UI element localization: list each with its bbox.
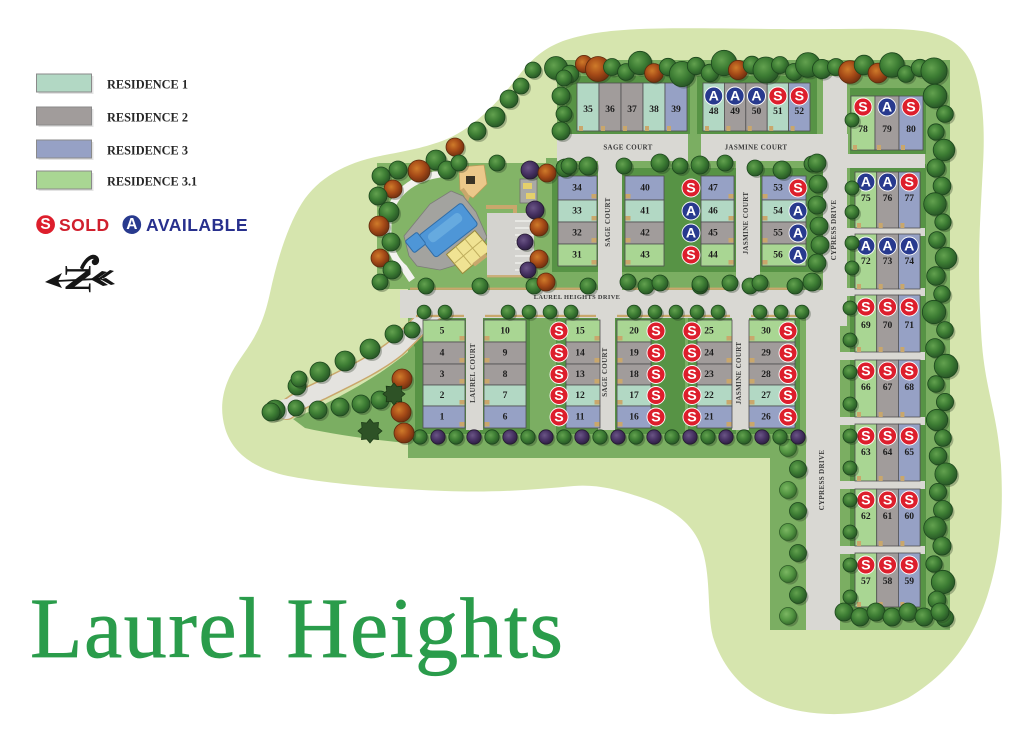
svg-text:65: 65	[904, 447, 914, 458]
svg-text:S: S	[883, 428, 892, 444]
svg-text:66: 66	[861, 382, 871, 393]
svg-text:A: A	[686, 225, 696, 241]
svg-text:73: 73	[883, 256, 893, 267]
svg-text:S: S	[686, 247, 695, 263]
svg-text:S: S	[861, 299, 870, 315]
svg-text:50: 50	[752, 106, 762, 117]
svg-text:59: 59	[904, 576, 914, 587]
svg-text:43: 43	[640, 250, 650, 261]
svg-text:39: 39	[671, 104, 681, 115]
svg-text:A: A	[730, 88, 740, 104]
svg-text:A: A	[861, 174, 871, 190]
svg-text:16: 16	[629, 412, 639, 423]
svg-text:31: 31	[572, 250, 582, 261]
svg-text:68: 68	[904, 382, 914, 393]
svg-text:79: 79	[882, 124, 892, 135]
svg-text:S: S	[883, 363, 892, 379]
svg-text:3: 3	[440, 369, 445, 380]
svg-text:S: S	[858, 99, 867, 115]
svg-text:25: 25	[704, 326, 714, 337]
svg-text:JASMINE COURT: JASMINE COURT	[742, 192, 750, 255]
svg-text:S: S	[883, 492, 892, 508]
svg-text:S: S	[783, 345, 792, 361]
svg-text:9: 9	[503, 348, 508, 359]
svg-text:S: S	[687, 367, 696, 383]
svg-text:A: A	[882, 238, 892, 254]
svg-text:RESIDENCE 2: RESIDENCE 2	[107, 111, 188, 125]
svg-text:S: S	[651, 323, 660, 339]
svg-text:34: 34	[572, 183, 582, 194]
svg-text:71: 71	[904, 320, 914, 331]
svg-text:62: 62	[861, 511, 871, 522]
svg-text:63: 63	[861, 447, 871, 458]
svg-text:S: S	[687, 345, 696, 361]
svg-text:SAGE COURT: SAGE COURT	[603, 144, 652, 152]
svg-text:49: 49	[730, 106, 740, 117]
svg-text:11: 11	[575, 412, 584, 423]
svg-text:S: S	[651, 409, 660, 425]
svg-text:32: 32	[572, 228, 582, 239]
svg-text:24: 24	[704, 348, 714, 359]
svg-text:5: 5	[440, 326, 445, 337]
svg-text:75: 75	[861, 193, 871, 204]
svg-text:48: 48	[709, 106, 719, 117]
svg-text:S: S	[554, 367, 563, 383]
svg-text:14: 14	[575, 348, 585, 359]
svg-text:A: A	[126, 216, 137, 233]
svg-text:LAUREL COURT: LAUREL COURT	[469, 343, 477, 403]
svg-text:60: 60	[904, 511, 914, 522]
svg-text:40: 40	[640, 183, 650, 194]
svg-text:20: 20	[629, 326, 639, 337]
svg-text:S: S	[883, 557, 892, 573]
svg-text:S: S	[687, 409, 696, 425]
svg-text:33: 33	[572, 206, 582, 217]
svg-text:S: S	[651, 367, 660, 383]
svg-text:52: 52	[795, 106, 805, 117]
svg-text:70: 70	[883, 320, 893, 331]
svg-text:64: 64	[883, 447, 893, 458]
svg-text:17: 17	[629, 390, 639, 401]
svg-text:27: 27	[761, 390, 771, 401]
svg-text:AVAILABLE: AVAILABLE	[146, 215, 248, 235]
svg-text:S: S	[905, 299, 914, 315]
svg-text:S: S	[883, 299, 892, 315]
svg-text:S: S	[905, 428, 914, 444]
svg-text:58: 58	[883, 576, 893, 587]
svg-text:RESIDENCE 3.1: RESIDENCE 3.1	[107, 175, 197, 189]
svg-text:S: S	[554, 323, 563, 339]
svg-text:S: S	[793, 180, 802, 196]
svg-text:80: 80	[906, 124, 916, 135]
svg-text:10: 10	[500, 326, 510, 337]
svg-text:S: S	[861, 492, 870, 508]
svg-text:A: A	[793, 203, 803, 219]
svg-text:1: 1	[440, 412, 445, 423]
svg-text:S: S	[783, 409, 792, 425]
svg-text:26: 26	[761, 412, 771, 423]
svg-text:42: 42	[640, 228, 650, 239]
svg-text:SAGE COURT: SAGE COURT	[601, 347, 609, 396]
svg-text:S: S	[906, 99, 915, 115]
svg-text:A: A	[882, 99, 892, 115]
svg-text:56: 56	[773, 250, 783, 261]
svg-text:35: 35	[583, 104, 593, 115]
svg-text:SOLD: SOLD	[59, 215, 110, 235]
svg-text:S: S	[686, 180, 695, 196]
svg-text:77: 77	[904, 193, 914, 204]
svg-text:S: S	[861, 428, 870, 444]
svg-text:44: 44	[708, 250, 718, 261]
svg-text:RESIDENCE 3: RESIDENCE 3	[107, 144, 188, 158]
svg-text:S: S	[905, 557, 914, 573]
svg-text:SAGE COURT: SAGE COURT	[604, 197, 612, 246]
svg-text:23: 23	[704, 369, 714, 380]
svg-text:S: S	[554, 409, 563, 425]
svg-text:S: S	[554, 388, 563, 404]
svg-text:28: 28	[761, 369, 771, 380]
svg-text:30: 30	[761, 326, 771, 337]
svg-text:JASMINE COURT: JASMINE COURT	[725, 144, 788, 152]
svg-text:6: 6	[503, 412, 508, 423]
svg-text:55: 55	[773, 228, 783, 239]
svg-text:S: S	[783, 388, 792, 404]
svg-text:S: S	[554, 345, 563, 361]
svg-text:2: 2	[440, 390, 445, 401]
svg-text:53: 53	[773, 183, 783, 194]
svg-text:A: A	[882, 174, 892, 190]
svg-text:72: 72	[861, 256, 871, 267]
svg-text:CYPRESS DRIVE: CYPRESS DRIVE	[818, 450, 826, 511]
svg-text:A: A	[904, 238, 914, 254]
svg-text:41: 41	[640, 206, 650, 217]
svg-text:A: A	[686, 203, 696, 219]
svg-text:12: 12	[575, 390, 585, 401]
svg-text:61: 61	[883, 511, 893, 522]
svg-text:A: A	[793, 247, 803, 263]
svg-text:47: 47	[708, 183, 718, 194]
svg-text:S: S	[651, 388, 660, 404]
svg-text:A: A	[861, 238, 871, 254]
svg-text:69: 69	[861, 320, 871, 331]
svg-text:CYPRESS DRIVE: CYPRESS DRIVE	[830, 200, 838, 261]
svg-text:S: S	[861, 363, 870, 379]
svg-text:19: 19	[629, 348, 639, 359]
svg-text:74: 74	[904, 256, 914, 267]
svg-text:7: 7	[503, 390, 508, 401]
svg-text:18: 18	[629, 369, 639, 380]
svg-text:JASMINE COURT: JASMINE COURT	[735, 342, 743, 405]
svg-text:A: A	[709, 88, 719, 104]
svg-text:8: 8	[503, 369, 508, 380]
svg-text:45: 45	[708, 228, 718, 239]
svg-text:22: 22	[704, 390, 714, 401]
svg-text:S: S	[861, 557, 870, 573]
svg-text:46: 46	[708, 206, 718, 217]
svg-text:S: S	[687, 388, 696, 404]
svg-text:A: A	[793, 225, 803, 241]
svg-text:S: S	[905, 492, 914, 508]
svg-text:76: 76	[883, 193, 893, 204]
svg-text:67: 67	[883, 382, 893, 393]
svg-text:4: 4	[440, 348, 445, 359]
svg-text:S: S	[783, 367, 792, 383]
svg-text:29: 29	[761, 348, 771, 359]
svg-text:38: 38	[649, 104, 659, 115]
svg-text:LAUREL HEIGHTS DRIVE: LAUREL HEIGHTS DRIVE	[534, 294, 621, 301]
svg-text:S: S	[905, 174, 914, 190]
svg-text:S: S	[773, 88, 782, 104]
svg-text:S: S	[651, 345, 660, 361]
svg-text:15: 15	[575, 326, 585, 337]
svg-text:54: 54	[773, 206, 783, 217]
svg-text:S: S	[687, 323, 696, 339]
svg-text:37: 37	[627, 104, 637, 115]
svg-text:21: 21	[704, 412, 714, 423]
svg-text:S: S	[40, 216, 50, 233]
svg-text:57: 57	[861, 576, 871, 587]
svg-text:S: S	[783, 323, 792, 339]
svg-text:51: 51	[773, 106, 783, 117]
svg-text:36: 36	[605, 104, 615, 115]
svg-text:Laurel Heights: Laurel Heights	[30, 580, 564, 676]
svg-text:RESIDENCE 1: RESIDENCE 1	[107, 78, 188, 92]
svg-text:S: S	[795, 88, 804, 104]
svg-text:S: S	[905, 363, 914, 379]
svg-text:A: A	[751, 88, 761, 104]
svg-text:13: 13	[575, 369, 585, 380]
